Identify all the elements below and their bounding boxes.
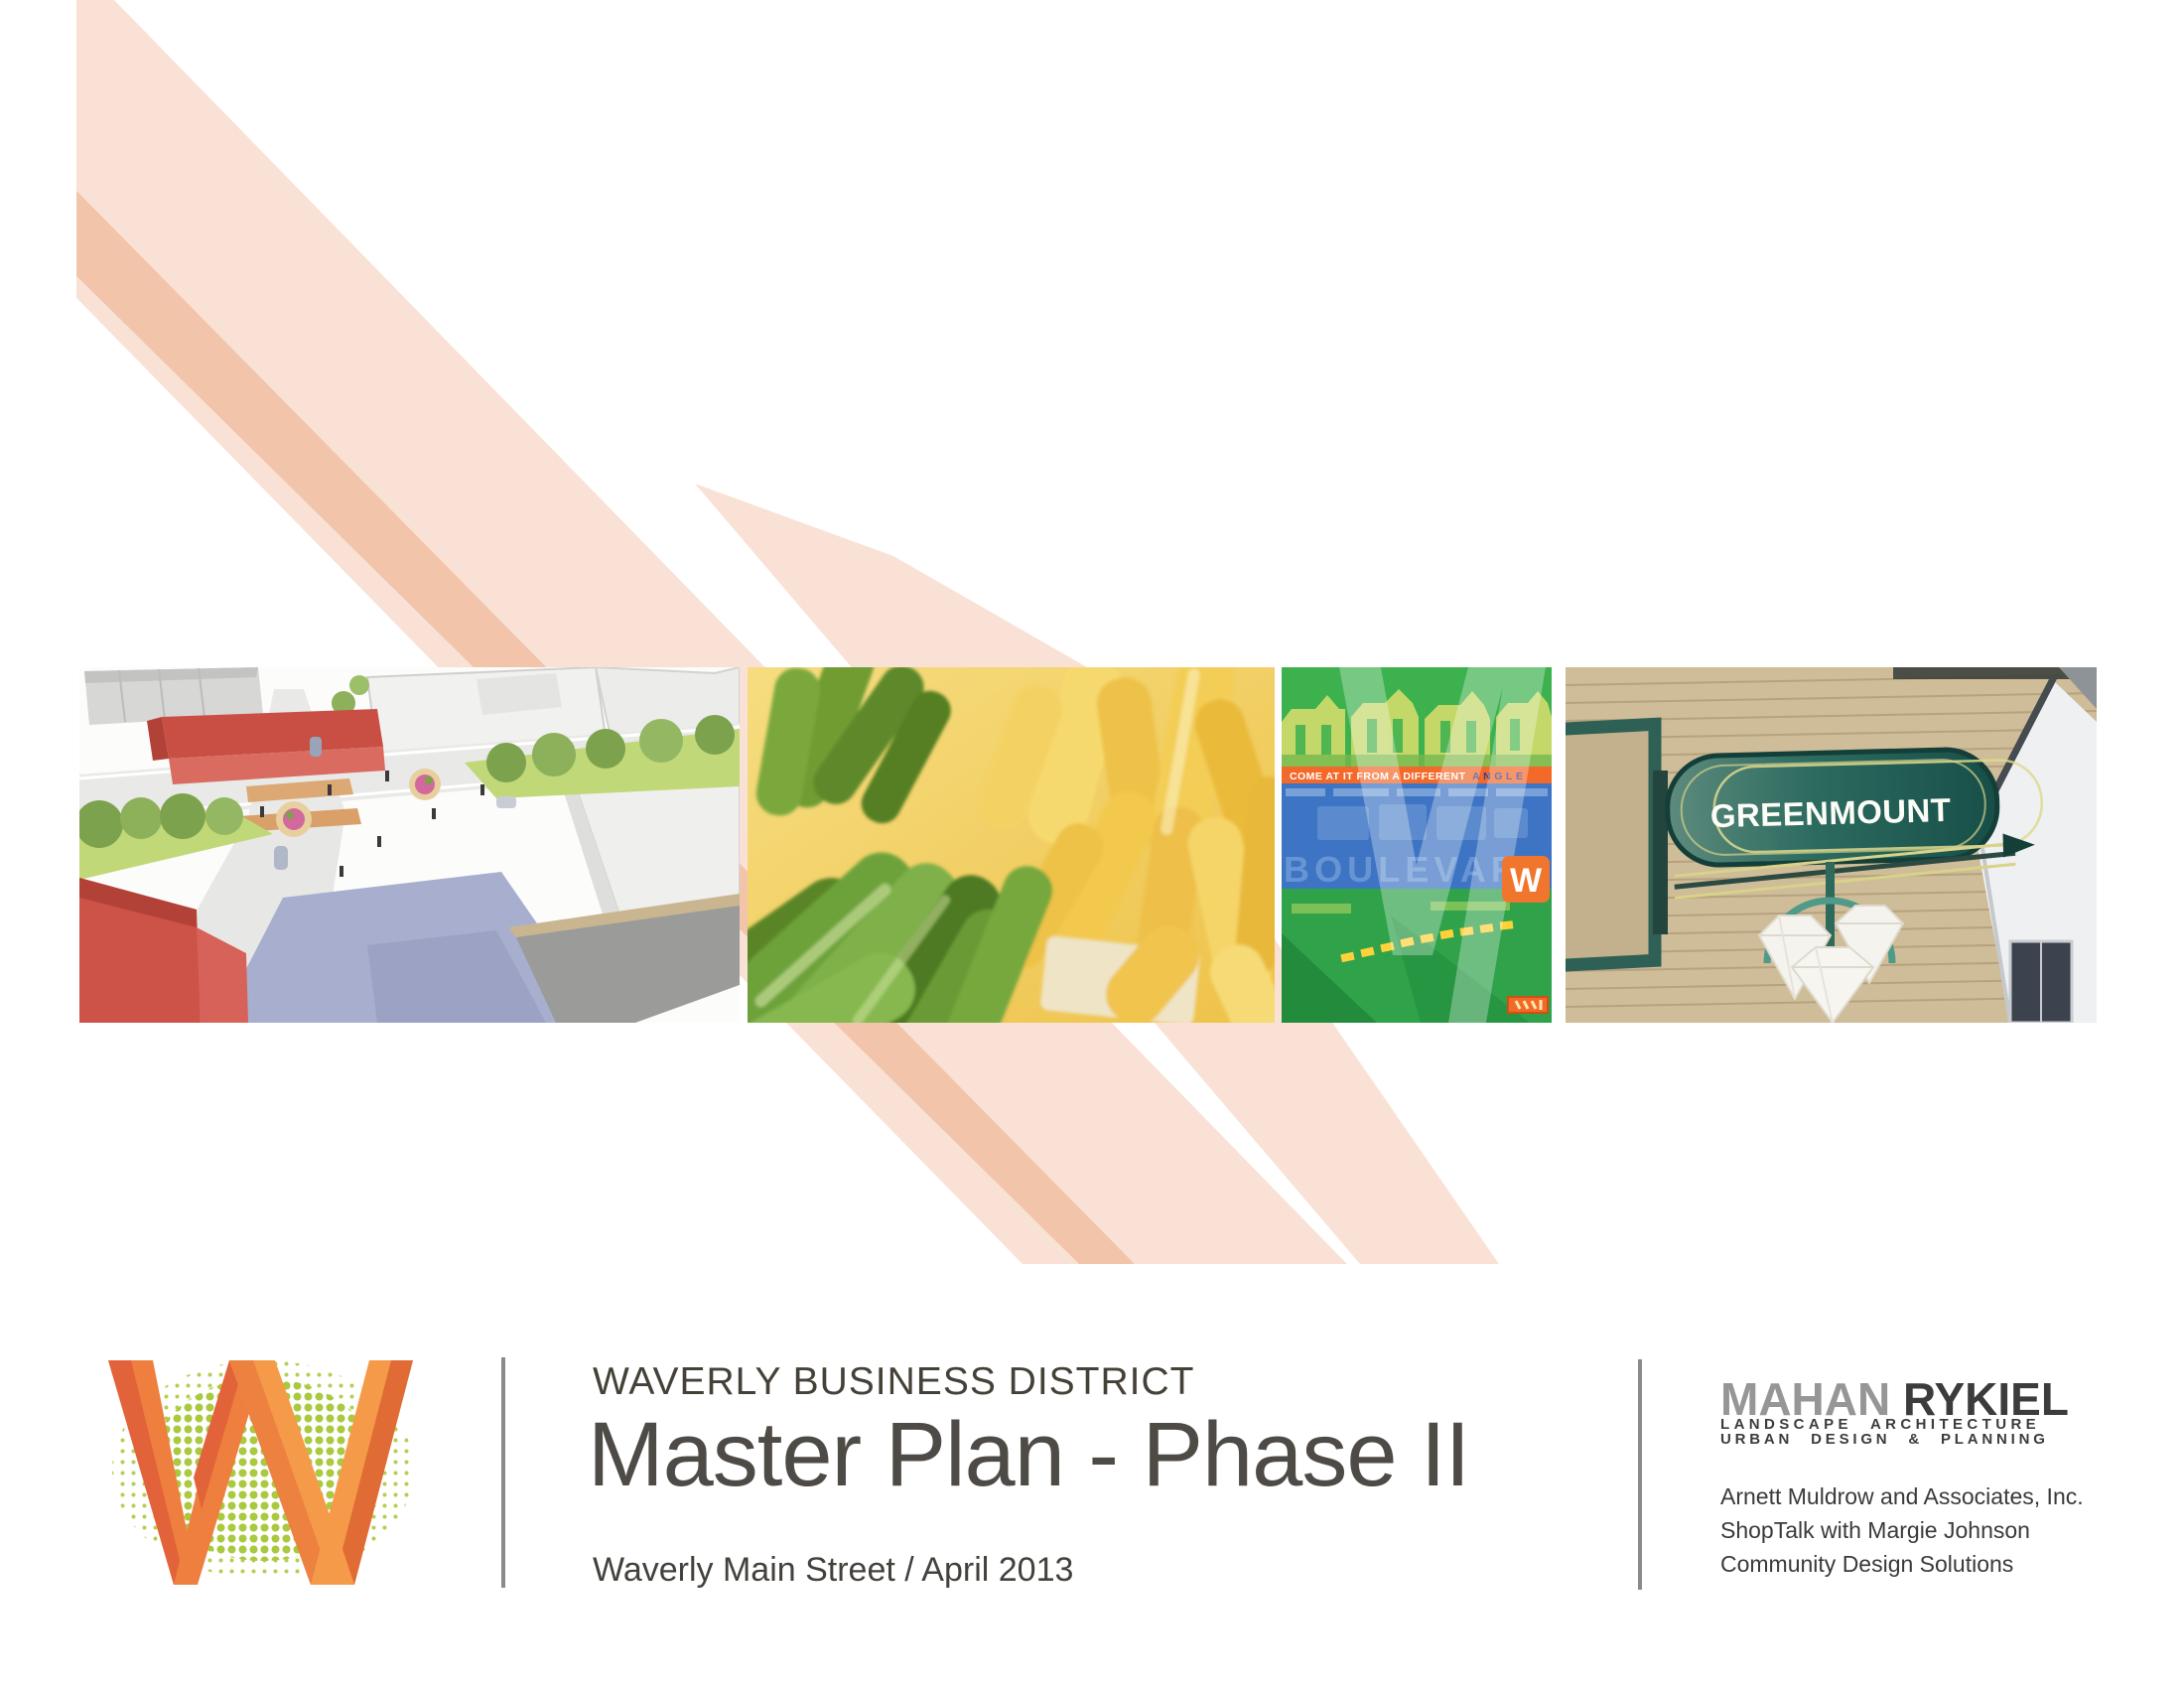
branding-poster-photo: COME AT IT FROM A DIFFERENT ANGLE BOULEV… <box>1282 667 1552 1023</box>
report-cover-page: COME AT IT FROM A DIFFERENT ANGLE BOULEV… <box>0 0 2184 1688</box>
report-eyebrow: WAVERLY BUSINESS DISTRICT <box>593 1360 1195 1404</box>
poster-w-badge-letter: W <box>1510 862 1543 900</box>
report-title: Master Plan - Phase II <box>588 1403 1469 1507</box>
stripe-band-light-main <box>76 0 1347 1264</box>
credit-line: Arnett Muldrow and Associates, Inc. <box>1720 1479 2084 1513</box>
farmers-market-produce-photo <box>748 667 1275 1023</box>
credit-line: ShopTalk with Margie Johnson <box>1720 1513 2084 1547</box>
greenmount-sign-photo: GREENMOUNT <box>1566 667 2097 1023</box>
consultant-credits: Arnett Muldrow and Associates, Inc. Shop… <box>1720 1479 2084 1581</box>
window-frame-left <box>1566 724 1655 966</box>
divider-logo-title <box>501 1357 505 1588</box>
divider-title-firms <box>1638 1359 1642 1590</box>
firm-tagline-line2: URBAN DESIGN & PLANNING <box>1720 1431 2098 1448</box>
streetscape-rendering-photo <box>79 667 740 1023</box>
report-subtitle: Waverly Main Street / April 2013 <box>593 1551 1073 1590</box>
credit-line: Community Design Solutions <box>1720 1547 2084 1581</box>
waverly-w-logo <box>106 1358 414 1587</box>
greenmount-sign-text: GREENMOUNT <box>1709 791 1957 834</box>
